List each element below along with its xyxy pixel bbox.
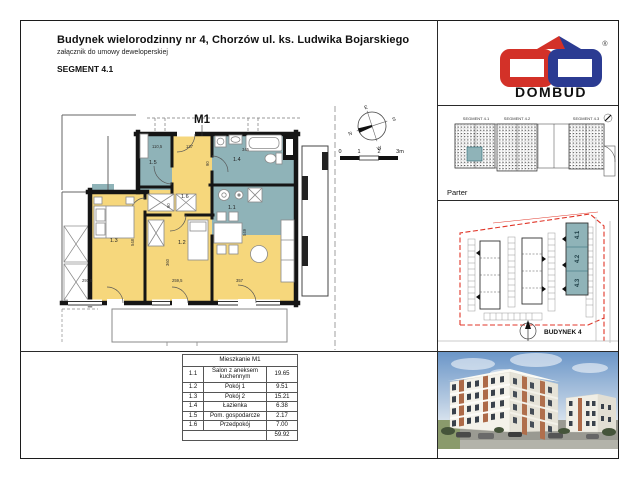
scale-2: 2 (377, 149, 380, 155)
row-name: Salon z aneksem kuchennym (204, 366, 267, 382)
scale-3m: 3m (396, 149, 404, 155)
room-label-1-6: 1.6 (181, 194, 189, 200)
total-area: 59.92 (267, 430, 298, 440)
page-subtitle: załącznik do umowy deweloperskiej (57, 49, 168, 56)
windows (68, 299, 280, 307)
row-no: 1.1 (183, 366, 204, 382)
segment-titles: SEGMENT 4.1 SEGMENT 4.2 SEGMENT 4.3 (463, 116, 600, 121)
segment-title-41: SEGMENT 4.1 (463, 116, 490, 121)
table-total-row: 59.92 (183, 430, 298, 440)
unit-label: M1 (194, 114, 211, 126)
room-label-1-5: 1.5 (149, 160, 157, 166)
dim-259-5: 259,5 (172, 278, 183, 283)
room-label-1-3: 1.3 (110, 238, 118, 244)
table-row: 1.3 Pokój 2 15.21 (183, 392, 298, 402)
site-plan-panel: 4.1 4.2 4.3 BUDYNEK 4 (438, 201, 618, 349)
room-label-1-2: 1.2 (178, 240, 186, 246)
db-monogram-icon (505, 36, 597, 82)
segment-title-43: SEGMENT 4.3 (573, 116, 600, 121)
highlighted-unit (467, 147, 482, 161)
table-row: 1.6 Przedpokój 7.00 (183, 421, 298, 431)
row-area: 15.21 (267, 392, 298, 402)
dim-357: 357 (236, 278, 244, 283)
dim-90-b: 90 (205, 161, 210, 166)
building-rendering (438, 352, 618, 449)
row-area: 19.65 (267, 366, 298, 382)
row-no: 1.3 (183, 392, 204, 402)
dim-345: 345 (242, 147, 250, 152)
table-row: 1.1 Salon z aneksem kuchennym 19.65 (183, 366, 298, 382)
compass-n: N (348, 131, 354, 138)
row-no: 1.5 (183, 411, 204, 421)
site-buildings: 4.1 4.2 4.3 (476, 223, 588, 309)
second-building (566, 394, 616, 432)
budynek-4-block: 4.1 4.2 4.3 (566, 223, 588, 295)
dombud-logo: ® DOMBUD (497, 34, 615, 100)
site-unit-42: 4.2 (575, 254, 581, 263)
table-row: 1.4 Łazienka 6.38 (183, 402, 298, 412)
compass-s: S (392, 116, 398, 123)
table-row: 1.5 Pom. gospodarcze 2.17 (183, 411, 298, 421)
row-name: Pom. gospodarcze (204, 411, 267, 421)
dim-291-5: 291,5 (82, 278, 93, 283)
shaft (286, 139, 293, 155)
mini-plans (455, 114, 615, 176)
logo-text: DOMBUD (515, 84, 587, 100)
scale-bar: 0 1 2 3m (338, 149, 404, 160)
floor-plan-m1: M1 1.5 1.4 1.6 1.1 1.3 1.2 110,5 137 345… (52, 106, 342, 350)
floor-label: Parter (447, 188, 468, 197)
row-no: 1.6 (183, 421, 204, 431)
area-table-title: Mieszkanie M1 (183, 355, 298, 367)
north-arrow-icon: N S E W (342, 104, 405, 159)
room-label-1-1: 1.1 (228, 205, 236, 211)
dim-549: 549 (242, 228, 247, 236)
site-unit-43: 4.3 (575, 278, 581, 287)
scale-1: 1 (357, 149, 360, 155)
segment-title-42: SEGMENT 4.2 (504, 116, 531, 121)
row-area: 9.51 (267, 383, 298, 393)
site-unit-41: 4.1 (575, 230, 581, 239)
drawing-sheet: Budynek wielorodzinny nr 4, Chorzów ul. … (0, 0, 640, 480)
page-title: Budynek wielorodzinny nr 4, Chorzów ul. … (57, 34, 427, 46)
room-label-1-4: 1.4 (233, 157, 241, 163)
dim-360: 360 (165, 258, 170, 266)
area-table: Mieszkanie M1 1.1 Salon z aneksem kuchen… (182, 354, 298, 441)
row-no: 1.2 (183, 383, 204, 393)
table-row: 1.2 Pokój 1 9.51 (183, 383, 298, 393)
row-no: 1.4 (183, 402, 204, 412)
row-name: Łazienka (204, 402, 267, 412)
compass-and-scale: N S E W 0 1 2 3m (332, 104, 436, 180)
registered-mark: ® (602, 40, 608, 48)
site-compass-icon (520, 320, 536, 341)
row-name: Przedpokój (204, 421, 267, 431)
row-name: Pokój 2 (204, 392, 267, 402)
segment-label: SEGMENT 4.1 (57, 64, 113, 74)
site-building-label: BUDYNEK 4 (544, 329, 582, 336)
dim-137: 137 (186, 144, 194, 149)
neighbour-furniture (64, 226, 88, 300)
row-area: 7.00 (267, 421, 298, 431)
terrace (62, 309, 287, 346)
neighbour-wall-chunks (302, 152, 328, 266)
dim-548: 548 (130, 238, 135, 246)
scale-0: 0 (338, 149, 341, 155)
dim-90-a: 90 (166, 203, 171, 208)
row-area: 6.38 (267, 402, 298, 412)
floor-overview-panel: SEGMENT 4.1 SEGMENT 4.2 SEGMENT 4.3 Part… (438, 106, 618, 200)
dim-110-5: 110,5 (152, 144, 163, 149)
mini-compass-icon (604, 114, 612, 122)
total-spacer (183, 430, 267, 440)
row-name: Pokój 1 (204, 383, 267, 393)
row-area: 2.17 (267, 411, 298, 421)
compass-e: E (364, 104, 370, 111)
